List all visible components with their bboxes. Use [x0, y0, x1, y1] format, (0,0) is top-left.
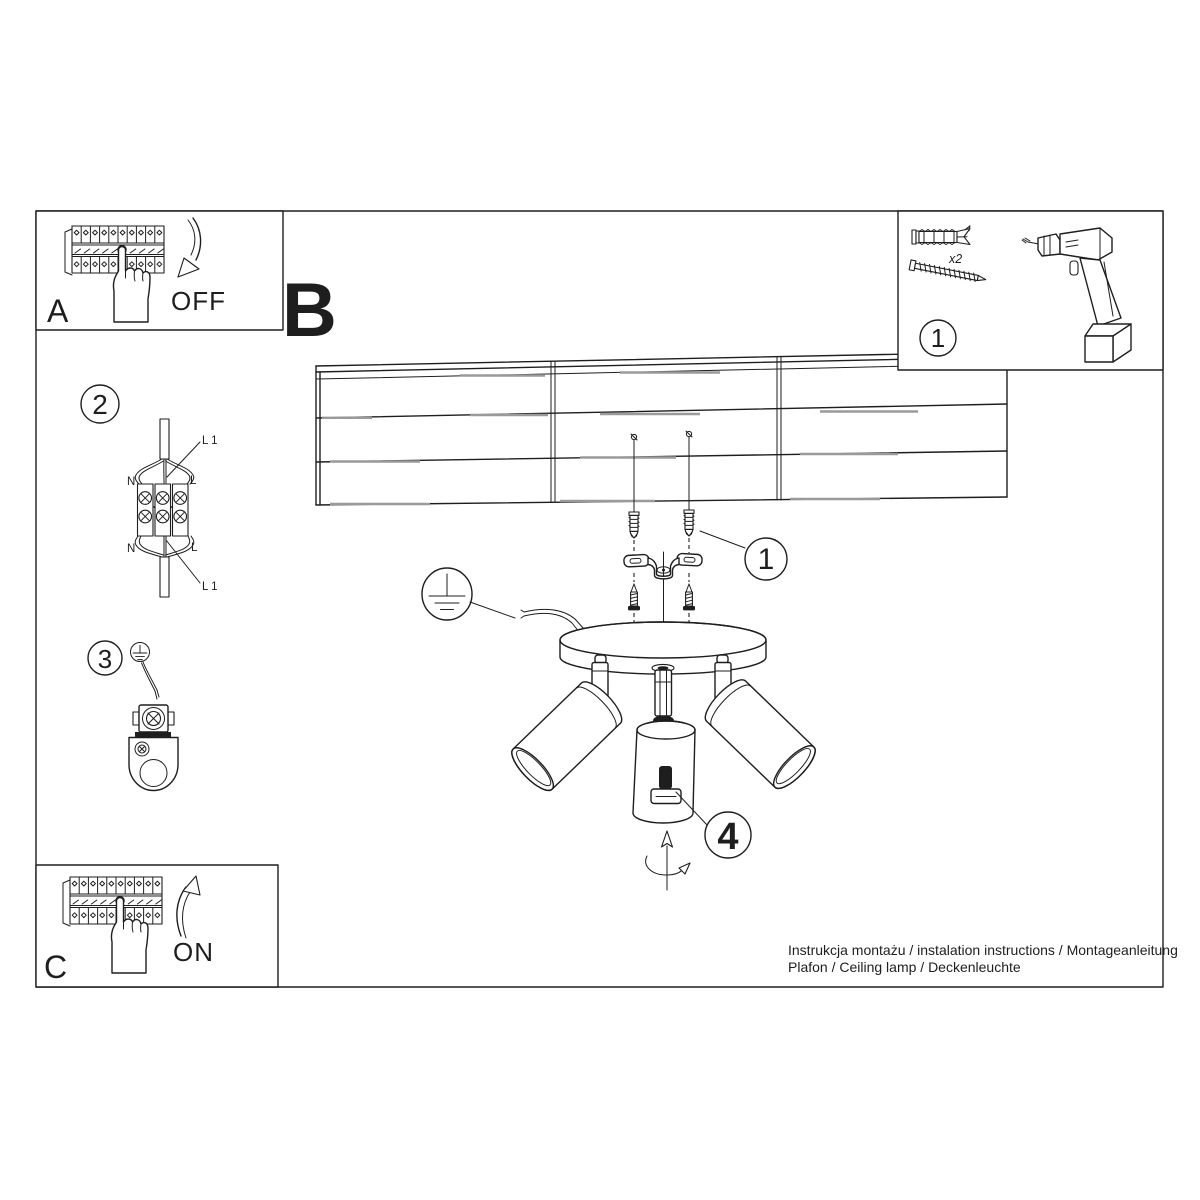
wire-n-bottom-label: N [127, 543, 135, 555]
anchor-qty-label: x2 [948, 252, 962, 266]
callout-tools: 1 [920, 320, 956, 356]
wire-l1-bottom-label: L 1 [202, 581, 218, 593]
lamp-spot-center [633, 721, 695, 823]
wire-l-bottom-label: L [191, 542, 198, 554]
step-c-label: C [44, 949, 67, 985]
footer-line-1: Instrukcja montażu / instalation instruc… [788, 942, 1178, 958]
ground-wire [142, 662, 160, 699]
step-c-box: C ON [36, 865, 278, 987]
grounding-step: 3 [88, 641, 178, 791]
rotation-arrow-icon [646, 831, 690, 890]
wire-l-top-label: L [190, 475, 197, 487]
ground-clamp-icon [129, 705, 178, 791]
power-on-label: ON [173, 937, 214, 967]
wiring-step: 2 N L L 1 [81, 385, 218, 597]
instruction-drawing: 1 [0, 0, 1200, 1200]
breaker-panel-icon [65, 226, 164, 275]
callout-mount-number: 1 [758, 543, 775, 576]
footer-caption: Instrukcja montażu / instalation instruc… [788, 942, 1178, 975]
lamp-center-stem [655, 670, 672, 716]
power-off-label: OFF [171, 286, 226, 316]
l1-top-leader [167, 442, 200, 477]
socket-pin [659, 766, 672, 789]
alignment-dashed-lines [634, 538, 689, 622]
lamp-spot-left [506, 676, 628, 796]
power-wire [521, 609, 584, 633]
tools-box-number: 1 [931, 323, 945, 353]
mounting-screw-icon [628, 584, 695, 610]
instruction-sheet: 1 [0, 0, 1200, 1200]
wall-anchor-icon [629, 510, 694, 538]
ground-symbol-small-icon [131, 643, 150, 662]
callout-ground-number: 3 [98, 644, 112, 674]
ceiling-lamp [506, 622, 821, 823]
wire-n-top-label: N [127, 476, 135, 488]
breaker-panel-icon-c [63, 877, 162, 926]
ground-symbol-icon [422, 568, 472, 620]
footer-line-2: Plafon / Ceiling lamp / Deckenleuchte [788, 959, 1021, 975]
wire-l1-top-label: L 1 [202, 435, 218, 447]
step-b-label: B [282, 268, 337, 353]
step-a-box: A OFF [36, 211, 283, 330]
step-a-label: A [47, 293, 69, 329]
terminal-block-icon [135, 419, 194, 597]
ceiling-panel [316, 352, 1007, 505]
tools-box: x2 1 [898, 211, 1163, 370]
callout-wiring-number: 2 [92, 389, 108, 420]
callout-mount: 1 [700, 531, 787, 580]
ground-leader-line [470, 602, 515, 618]
callout-adjust-number: 4 [717, 816, 738, 858]
